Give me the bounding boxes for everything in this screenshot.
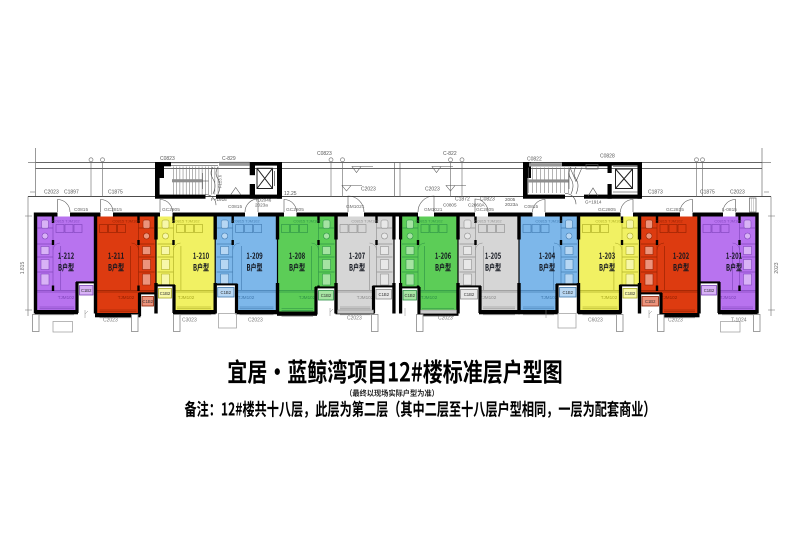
svg-text:C0815: C0815 <box>524 204 538 210</box>
svg-text:C2023: C2023 <box>668 318 683 324</box>
svg-text:C-822: C-822 <box>443 151 457 157</box>
svg-text:GM1021: GM1021 <box>424 207 443 213</box>
svg-text:TJM102: TJM102 <box>480 295 497 300</box>
svg-text:C0805: C0805 <box>443 203 457 208</box>
svg-text:C3023: C3023 <box>182 318 197 324</box>
svg-text:C0815 TJM102: C0815 TJM102 <box>474 219 502 224</box>
svg-text:C2023: C2023 <box>425 187 440 193</box>
svg-text:C0823: C0823 <box>480 197 495 203</box>
svg-text:C0823: C0823 <box>160 156 175 162</box>
svg-text:C0815 TJM102: C0815 TJM102 <box>595 219 623 224</box>
svg-text:TJM102: TJM102 <box>238 295 255 300</box>
svg-text:TJM102: TJM102 <box>720 295 737 300</box>
svg-text:C0815 TJM102: C0815 TJM102 <box>535 219 563 224</box>
svg-text:TJM102: TJM102 <box>541 295 558 300</box>
svg-text:C0815 TJM102: C0815 TJM102 <box>172 219 200 224</box>
svg-text:GM1021: GM1021 <box>346 204 365 210</box>
svg-text:2023: 2023 <box>774 262 780 273</box>
svg-text:C0822: C0822 <box>527 157 542 163</box>
svg-text:GC2805: GC2805 <box>286 207 304 213</box>
svg-text:C2023: C2023 <box>361 187 376 193</box>
svg-text:C0828: C0828 <box>600 154 615 160</box>
svg-text:TJM102: TJM102 <box>357 295 374 300</box>
svg-text:C1873: C1873 <box>648 190 663 196</box>
svg-text:C0823: C0823 <box>317 151 332 157</box>
svg-text:C2023: C2023 <box>44 190 59 196</box>
svg-text:C0815 TJM102: C0815 TJM102 <box>293 219 321 224</box>
svg-text:C-829: C-829 <box>222 156 236 162</box>
svg-text:C0815 TJM102: C0815 TJM102 <box>112 219 140 224</box>
svg-text:C0815 TJM102: C0815 TJM102 <box>655 219 683 224</box>
svg-text:C0815: C0815 <box>74 207 88 213</box>
svg-text:TJM102: TJM102 <box>421 295 438 300</box>
svg-text:C1B2: C1B2 <box>625 291 636 296</box>
svg-text:C1B2: C1B2 <box>379 292 390 297</box>
svg-text:C1B2: C1B2 <box>464 292 475 297</box>
svg-text:C2023: C2023 <box>730 190 745 196</box>
svg-text:TJM102: TJM102 <box>58 295 75 300</box>
svg-text:C1875: C1875 <box>108 190 123 196</box>
svg-text:C1B2: C1B2 <box>160 291 171 296</box>
svg-text:C1B2: C1B2 <box>645 299 656 304</box>
svg-text:F123.6: F123.6 <box>218 174 223 188</box>
svg-text:C0815 TJM102: C0815 TJM102 <box>52 219 80 224</box>
svg-text:C1875: C1875 <box>700 190 715 196</box>
svg-text:12.25: 12.25 <box>284 191 297 197</box>
svg-text:C1B2: C1B2 <box>221 290 232 295</box>
svg-text:C1B2: C1B2 <box>143 299 154 304</box>
svg-text:C1B2: C1B2 <box>563 290 574 295</box>
svg-text:TJM102: TJM102 <box>178 295 195 300</box>
svg-text:C2023: C2023 <box>438 316 453 322</box>
svg-text:TJM102: TJM102 <box>661 295 678 300</box>
svg-text:TJM102: TJM102 <box>118 295 135 300</box>
svg-text:GC2805: GC2805 <box>162 207 180 213</box>
svg-text:C1897: C1897 <box>64 190 79 196</box>
svg-text:TJM102: TJM102 <box>299 295 316 300</box>
svg-text:C2023: C2023 <box>248 318 263 324</box>
svg-text:C1B2: C1B2 <box>405 293 416 298</box>
svg-text:C1B2: C1B2 <box>81 288 92 293</box>
svg-text:C2023: C2023 <box>103 318 118 324</box>
svg-text:L-0815: L-0815 <box>722 207 737 213</box>
svg-text:2023a: 2023a <box>505 202 518 207</box>
svg-text:C0815 TJM102: C0815 TJM102 <box>232 219 260 224</box>
svg-text:C0815 TJM102: C0815 TJM102 <box>714 219 742 224</box>
svg-text:TJM102: TJM102 <box>601 295 618 300</box>
svg-text:T-1024: T-1024 <box>731 318 747 324</box>
svg-text:C1872: C1872 <box>455 197 470 203</box>
svg-text:GC2805: GC2805 <box>476 207 494 213</box>
svg-text:C0815 TJM102: C0815 TJM102 <box>415 219 443 224</box>
svg-text:C6023: C6023 <box>588 318 603 324</box>
svg-text:C2060A: C2060A <box>468 203 486 208</box>
svg-text:C0815 TJM102: C0815 TJM102 <box>351 219 379 224</box>
svg-text:2023a: 2023a <box>255 203 268 208</box>
svg-text:C1B2: C1B2 <box>704 288 715 293</box>
svg-text:GC2805: GC2805 <box>598 207 616 213</box>
svg-text:1.815: 1.815 <box>20 262 26 275</box>
svg-text:C1B2: C1B2 <box>321 293 332 298</box>
svg-text:GC2815: GC2815 <box>104 207 122 213</box>
svg-text:C2023: C2023 <box>347 316 362 322</box>
svg-text:GC2815: GC2815 <box>666 207 684 213</box>
svg-text:G+1914: G+1914 <box>585 200 602 205</box>
svg-text:C0815: C0815 <box>228 204 242 210</box>
